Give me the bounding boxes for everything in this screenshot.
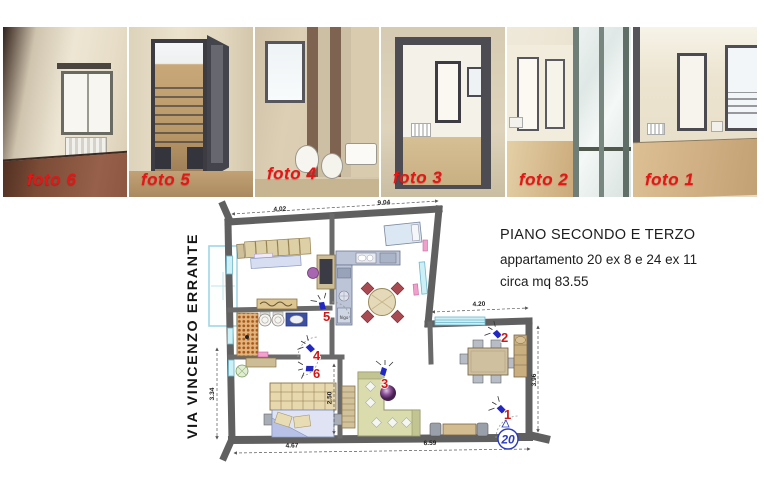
street-label: VIA VINCENZO ERRANTE [185, 233, 200, 439]
window [467, 67, 483, 97]
radiator [647, 123, 665, 135]
bathroom [237, 312, 307, 357]
living-room-furniture [237, 238, 335, 309]
dim-left-side: 3.34 [209, 387, 216, 400]
kitchen: frigo [336, 251, 404, 325]
photo-foto-6: foto 6 [3, 27, 127, 197]
marker-6: 6 [313, 366, 320, 381]
radiator [711, 121, 723, 132]
photo-strip: foto 6 foto 5 foto 4 [3, 27, 757, 197]
planter [187, 147, 203, 169]
photo-label: foto 5 [141, 170, 190, 190]
photo-foto-5: foto 5 [129, 27, 253, 197]
sofa-corner [358, 372, 420, 436]
glass-mullion [599, 27, 604, 197]
window [725, 45, 757, 131]
marker-1: 1 [504, 407, 511, 422]
sink [345, 143, 377, 165]
photo-label: foto 2 [519, 170, 568, 190]
back-door [435, 61, 461, 123]
window [61, 71, 113, 135]
balcony-railing [155, 83, 203, 143]
photo-foto-3: foto 3 [381, 27, 505, 197]
dim-right-side: 3.96 [531, 373, 538, 386]
photo-foto-2: foto 2 [507, 27, 631, 197]
photo-label: foto 4 [267, 164, 316, 184]
window-shade [57, 63, 111, 69]
marker-5: 5 [323, 309, 330, 324]
dim-bottom-left: 4.67 [286, 442, 299, 449]
balcony-door-frame [151, 39, 207, 175]
floor-plan: VIA VINCENZO ERRANTE [180, 196, 564, 492]
radiator [411, 123, 431, 137]
real-estate-flyer: foto 6 foto 5 foto 4 [0, 0, 764, 492]
photo-label: foto 6 [27, 170, 76, 190]
photo-foto-4: foto 4 [255, 27, 379, 197]
planter [155, 147, 171, 169]
dining-room [430, 335, 527, 436]
unit-number-badge: 20 [498, 420, 518, 449]
glass-mullion [623, 27, 629, 197]
dim-top-right: 9.04 [377, 199, 390, 207]
radiator [509, 117, 523, 128]
photo-label: foto 3 [393, 168, 442, 188]
bedroom [236, 358, 355, 437]
marker-3: 3 [381, 376, 388, 391]
doorway [677, 53, 707, 131]
marker-2: 2 [501, 330, 508, 345]
bidet [321, 153, 343, 179]
unit-number: 20 [500, 433, 515, 447]
window [265, 41, 305, 103]
dim-bedroom: 2.50 [327, 391, 334, 404]
dim-top-left: 4.02 [273, 206, 286, 214]
photo-foto-1: foto 1 [633, 27, 757, 197]
photo-label: foto 1 [645, 170, 694, 190]
dim-bottom-right: 6.59 [424, 440, 437, 447]
dim-right-window: 4.20 [473, 301, 486, 308]
marker-4: 4 [313, 348, 321, 363]
doorway-frame [395, 37, 491, 189]
glass-mullion [573, 27, 579, 197]
open-door-panel [207, 35, 229, 179]
doorway [545, 59, 565, 129]
fridge-label: frigo [340, 315, 349, 320]
